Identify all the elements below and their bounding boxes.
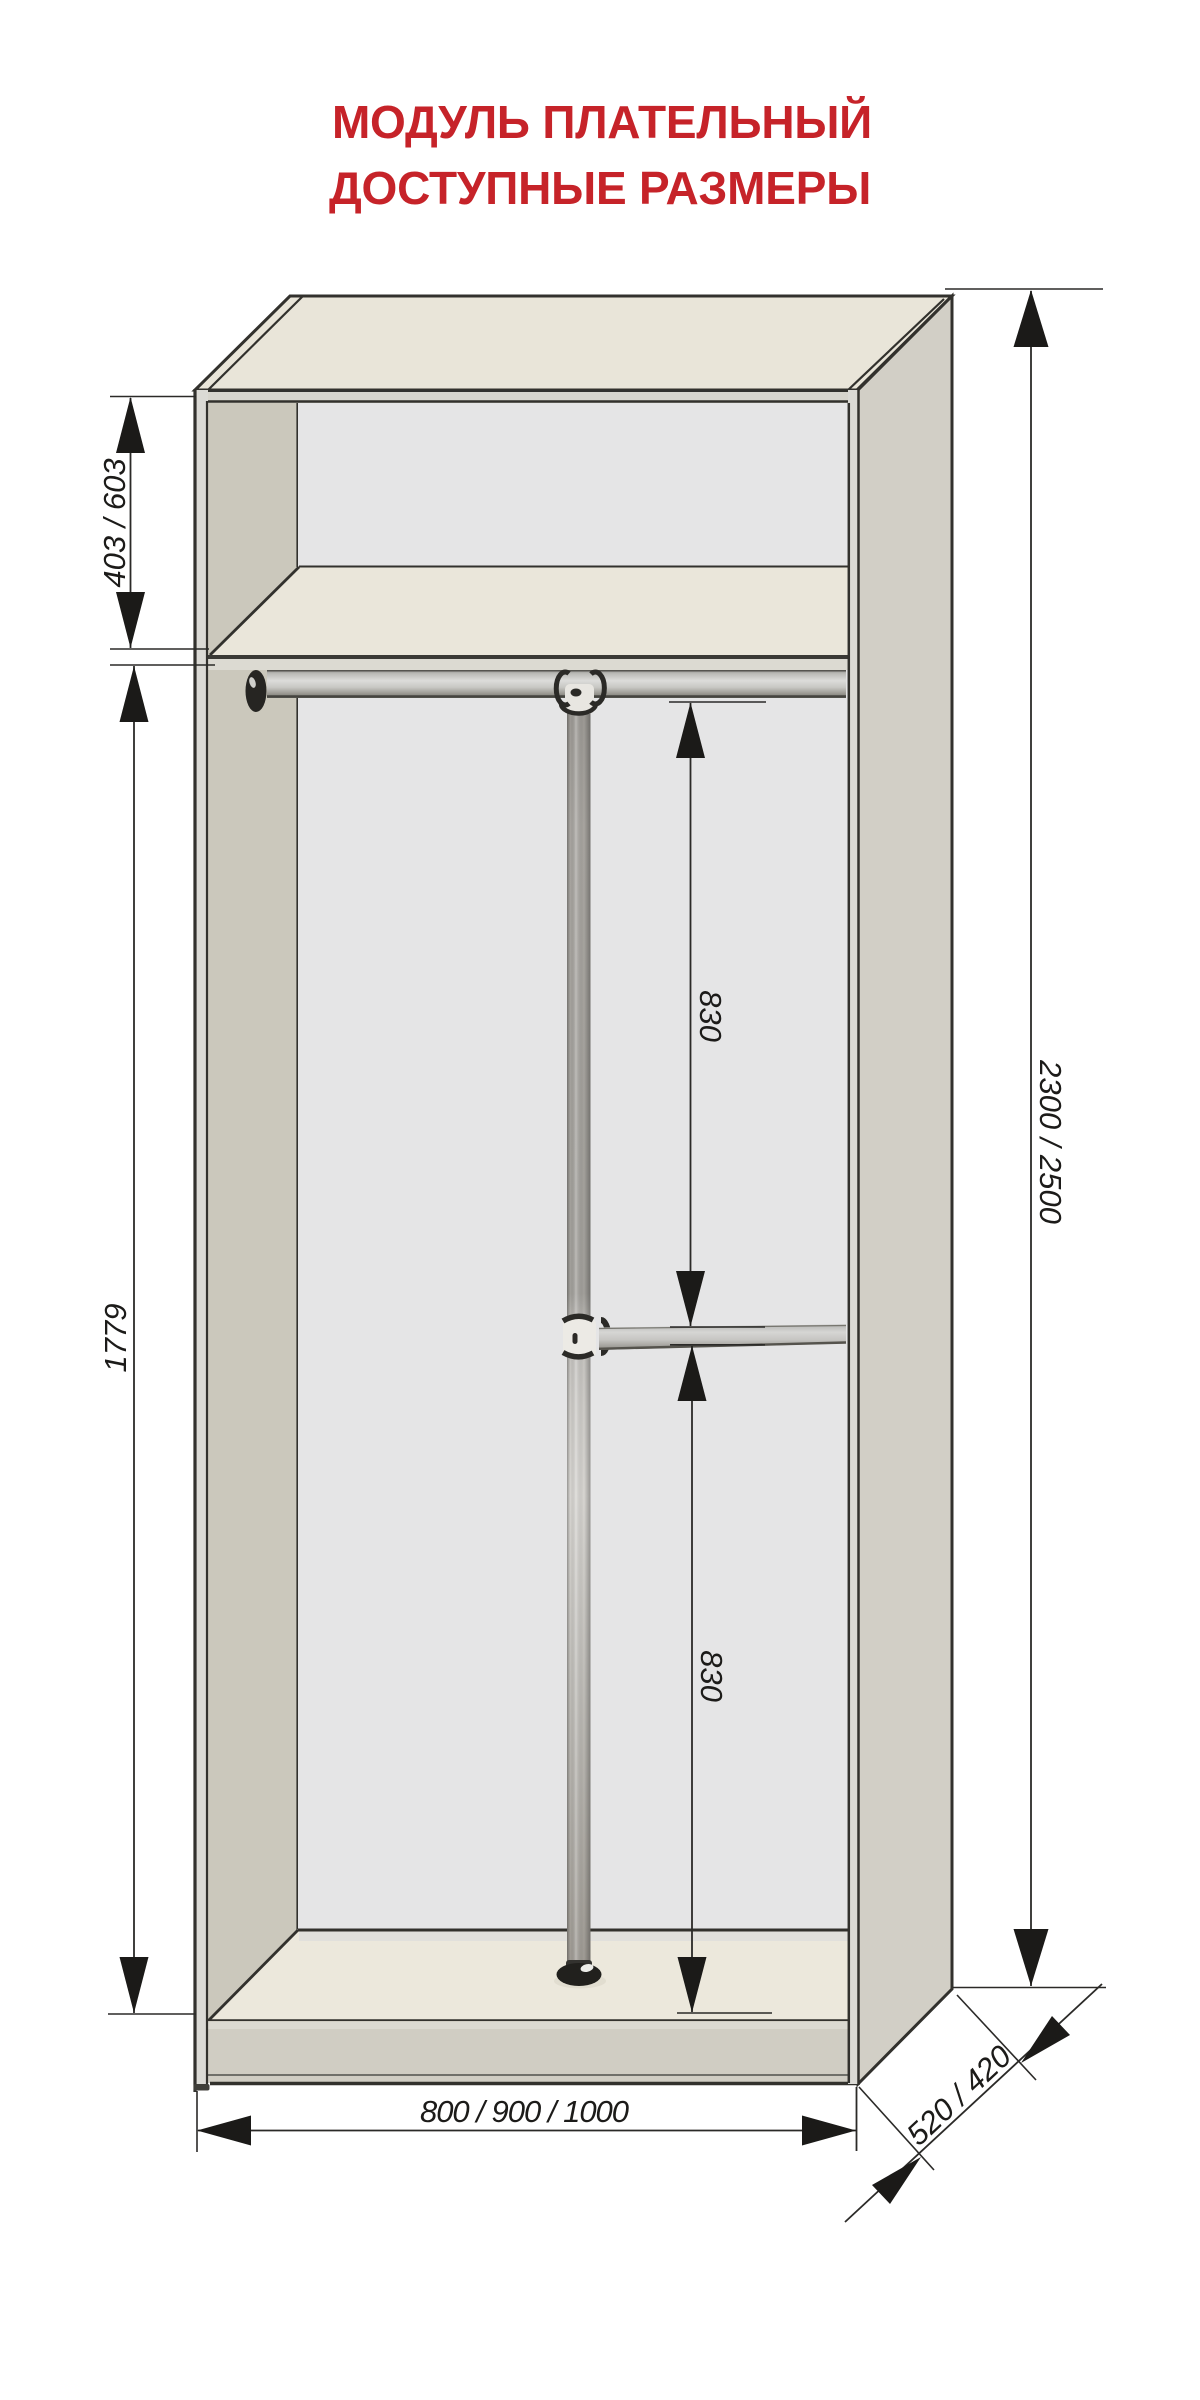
- svg-text:830: 830: [693, 990, 728, 1042]
- svg-text:830: 830: [694, 1650, 729, 1702]
- svg-text:2300 / 2500: 2300 / 2500: [1033, 1059, 1068, 1224]
- svg-text:ДОСТУПНЫЕ РАЗМЕРЫ: ДОСТУПНЫЕ РАЗМЕРЫ: [329, 162, 871, 214]
- svg-text:403 / 603: 403 / 603: [97, 458, 132, 587]
- svg-text:1779: 1779: [98, 1304, 133, 1373]
- svg-text:МОДУЛЬ ПЛАТЕЛЬНЫЙ: МОДУЛЬ ПЛАТЕЛЬНЫЙ: [332, 96, 872, 148]
- svg-text:800 / 900 / 1000: 800 / 900 / 1000: [420, 2094, 629, 2129]
